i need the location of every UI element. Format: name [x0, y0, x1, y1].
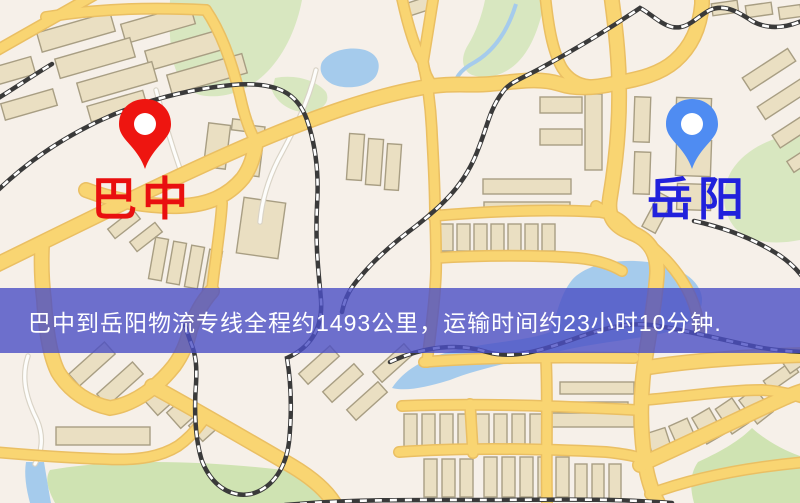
building: [491, 224, 504, 251]
building: [422, 414, 435, 447]
map-background: [0, 0, 800, 503]
building: [525, 224, 538, 251]
building: [609, 464, 621, 500]
building: [540, 129, 582, 145]
building: [575, 464, 587, 500]
building: [592, 464, 604, 500]
building: [440, 224, 453, 251]
pin-hole: [134, 113, 156, 135]
building: [512, 414, 525, 447]
building: [484, 457, 497, 497]
building: [365, 139, 383, 186]
origin-city-label: 巴中: [91, 176, 193, 222]
building: [346, 134, 364, 181]
building: [56, 427, 150, 445]
destination-city-label: 岳阳: [647, 176, 749, 222]
building: [520, 457, 533, 497]
building: [494, 414, 507, 447]
building: [483, 179, 571, 194]
building: [474, 224, 487, 251]
building: [460, 459, 473, 497]
building: [585, 94, 602, 170]
building: [404, 414, 417, 447]
building: [508, 224, 521, 251]
route-info-text: 巴中到岳阳物流专线全程约1493公里，运输时间约23小时10分钟.: [28, 304, 722, 338]
route-map-card: 巴中 岳阳 巴中到岳阳物流专线全程约1493公里，运输时间约23小时10分钟.: [0, 0, 800, 503]
building: [457, 224, 470, 251]
building: [540, 97, 582, 113]
building: [542, 224, 555, 251]
origin-pin-icon[interactable]: [117, 97, 173, 169]
building: [560, 382, 634, 394]
building: [384, 144, 401, 191]
building: [556, 457, 569, 497]
building: [424, 459, 437, 497]
building: [778, 5, 800, 20]
building: [440, 414, 453, 447]
route-info-banner: 巴中到岳阳物流专线全程约1493公里，运输时间约23小时10分钟.: [0, 288, 800, 353]
building: [442, 459, 455, 497]
building: [633, 97, 651, 143]
destination-pin-icon[interactable]: [664, 97, 720, 169]
building: [502, 457, 515, 497]
pin-hole: [681, 113, 703, 135]
